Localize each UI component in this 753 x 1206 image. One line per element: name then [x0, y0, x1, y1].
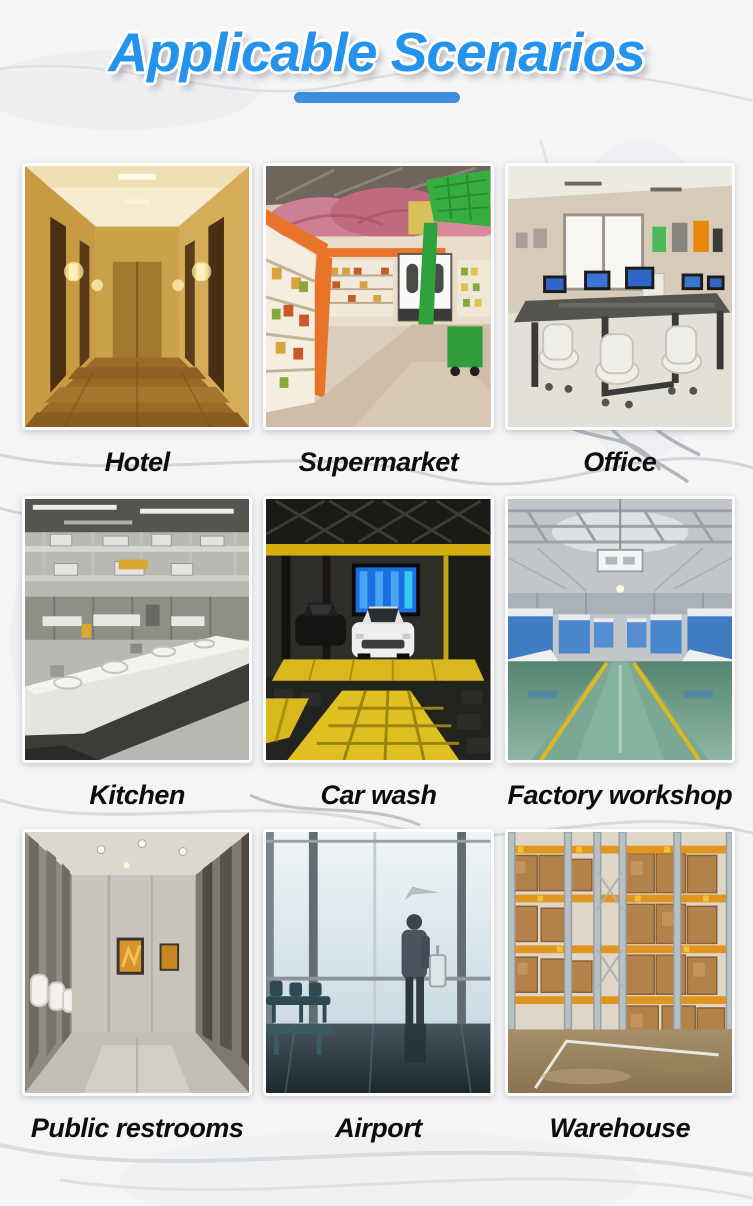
- scenario-label-supermarket: Supermarket: [263, 430, 493, 496]
- scenario-cell-supermarket: Supermarket: [263, 163, 493, 496]
- scenario-label-car-wash: Car wash: [263, 763, 493, 829]
- scenario-label-kitchen: Kitchen: [22, 763, 252, 829]
- scenario-cell-factory-workshop: Factory workshop: [505, 496, 735, 829]
- office-photo: [505, 163, 735, 430]
- airport-photo: [263, 829, 493, 1096]
- scenario-cell-car-wash: Car wash: [263, 496, 493, 829]
- scenario-cell-public-restrooms: Public restrooms: [22, 829, 252, 1162]
- scenario-grid: Hotel: [22, 163, 735, 1162]
- scenario-cell-hotel: Hotel: [22, 163, 252, 496]
- factory-workshop-photo: [505, 496, 735, 763]
- kitchen-photo: [22, 496, 252, 763]
- public-restrooms-photo: [22, 829, 252, 1096]
- page-header: Applicable Scenarios: [0, 0, 753, 103]
- scenario-label-airport: Airport: [263, 1096, 493, 1162]
- scenario-cell-kitchen: Kitchen: [22, 496, 252, 829]
- scenario-cell-airport: Airport: [263, 829, 493, 1162]
- scenario-label-warehouse: Warehouse: [505, 1096, 735, 1162]
- car-wash-photo: [263, 496, 493, 763]
- scenario-label-factory-workshop: Factory workshop: [505, 763, 735, 829]
- warehouse-photo: [505, 829, 735, 1096]
- page-title: Applicable Scenarios: [108, 24, 644, 82]
- scenario-label-office: Office: [505, 430, 735, 496]
- scenario-cell-office: Office: [505, 163, 735, 496]
- scenario-label-hotel: Hotel: [22, 430, 252, 496]
- supermarket-photo: [263, 163, 493, 430]
- scenario-label-public-restrooms: Public restrooms: [22, 1096, 252, 1162]
- title-underline: [294, 92, 460, 103]
- scenario-cell-warehouse: Warehouse: [505, 829, 735, 1162]
- hotel-photo: [22, 163, 252, 430]
